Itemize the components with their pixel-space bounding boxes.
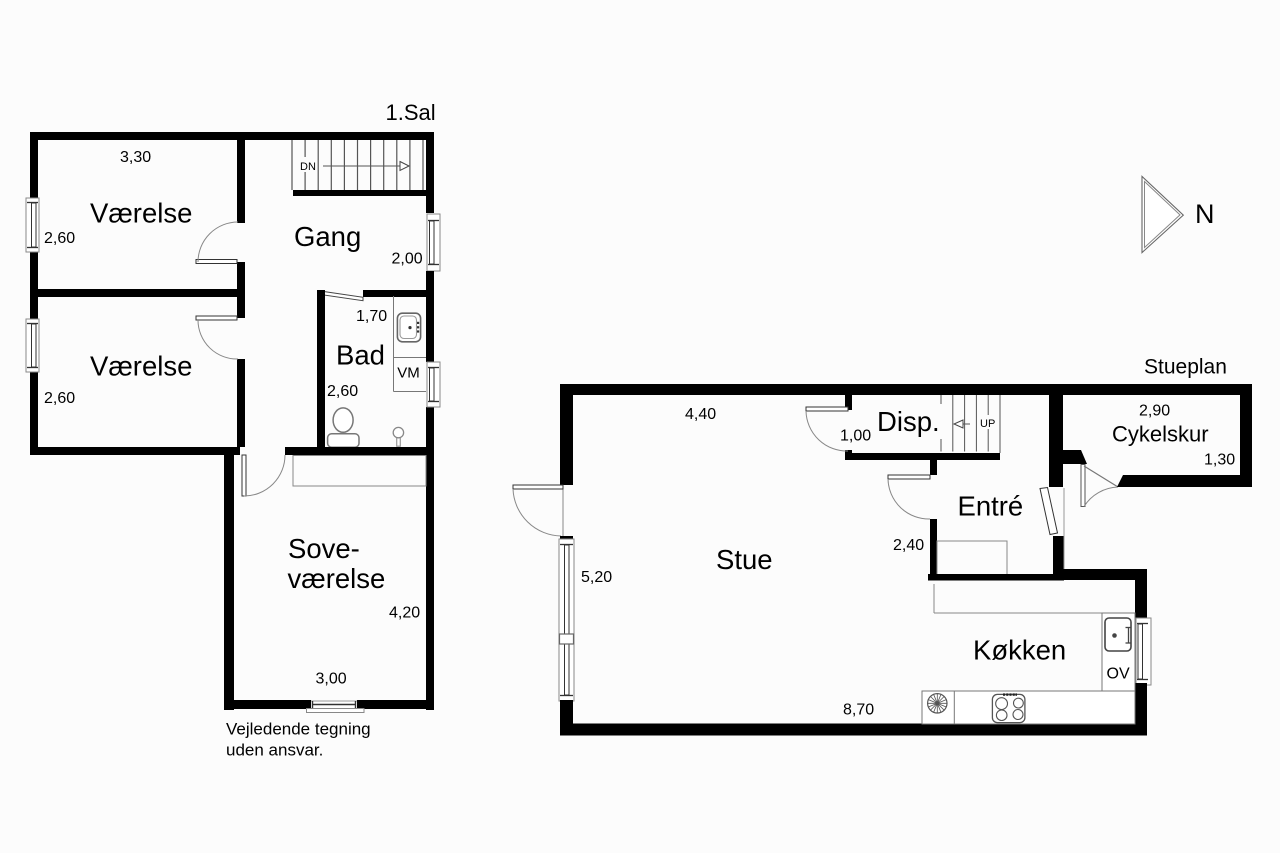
svg-text:Disp.: Disp. — [877, 406, 940, 437]
svg-text:Vejledende tegning: Vejledende tegning — [226, 720, 371, 739]
svg-text:Entré: Entré — [958, 491, 1024, 522]
svg-text:VM: VM — [397, 365, 420, 382]
svg-text:Bad: Bad — [336, 340, 385, 371]
svg-text:2,40: 2,40 — [893, 537, 924, 554]
svg-text:Værelse: Værelse — [90, 198, 192, 229]
svg-text:4,20: 4,20 — [389, 605, 420, 622]
svg-text:1,30: 1,30 — [1204, 452, 1235, 469]
svg-text:uden ansvar.: uden ansvar. — [226, 741, 323, 760]
svg-text:Gang: Gang — [294, 221, 361, 252]
svg-text:Værelse: Værelse — [90, 351, 192, 382]
svg-text:1,00: 1,00 — [840, 428, 871, 445]
svg-text:2,60: 2,60 — [44, 230, 75, 247]
svg-text:Cykelskur: Cykelskur — [1112, 422, 1209, 447]
svg-text:1.Sal: 1.Sal — [386, 100, 436, 125]
svg-text:N: N — [1195, 199, 1215, 229]
svg-text:Køkken: Køkken — [973, 635, 1066, 666]
svg-text:UP: UP — [980, 418, 995, 430]
svg-text:2,90: 2,90 — [1139, 403, 1170, 420]
svg-text:værelse: værelse — [288, 563, 386, 594]
svg-text:Stueplan: Stueplan — [1144, 356, 1227, 379]
svg-text:2,60: 2,60 — [327, 383, 358, 400]
svg-text:1,70: 1,70 — [356, 308, 387, 325]
svg-text:3,00: 3,00 — [316, 671, 347, 688]
svg-text:Stue: Stue — [716, 544, 773, 575]
svg-text:OV: OV — [1107, 666, 1130, 683]
svg-text:5,20: 5,20 — [581, 569, 612, 586]
svg-text:DN: DN — [300, 161, 316, 173]
svg-text:2,60: 2,60 — [44, 390, 75, 407]
svg-text:2,00: 2,00 — [392, 251, 423, 268]
svg-text:Sove-: Sove- — [288, 533, 360, 564]
svg-text:8,70: 8,70 — [843, 702, 874, 719]
svg-text:4,40: 4,40 — [685, 406, 716, 423]
svg-text:3,30: 3,30 — [120, 149, 151, 166]
